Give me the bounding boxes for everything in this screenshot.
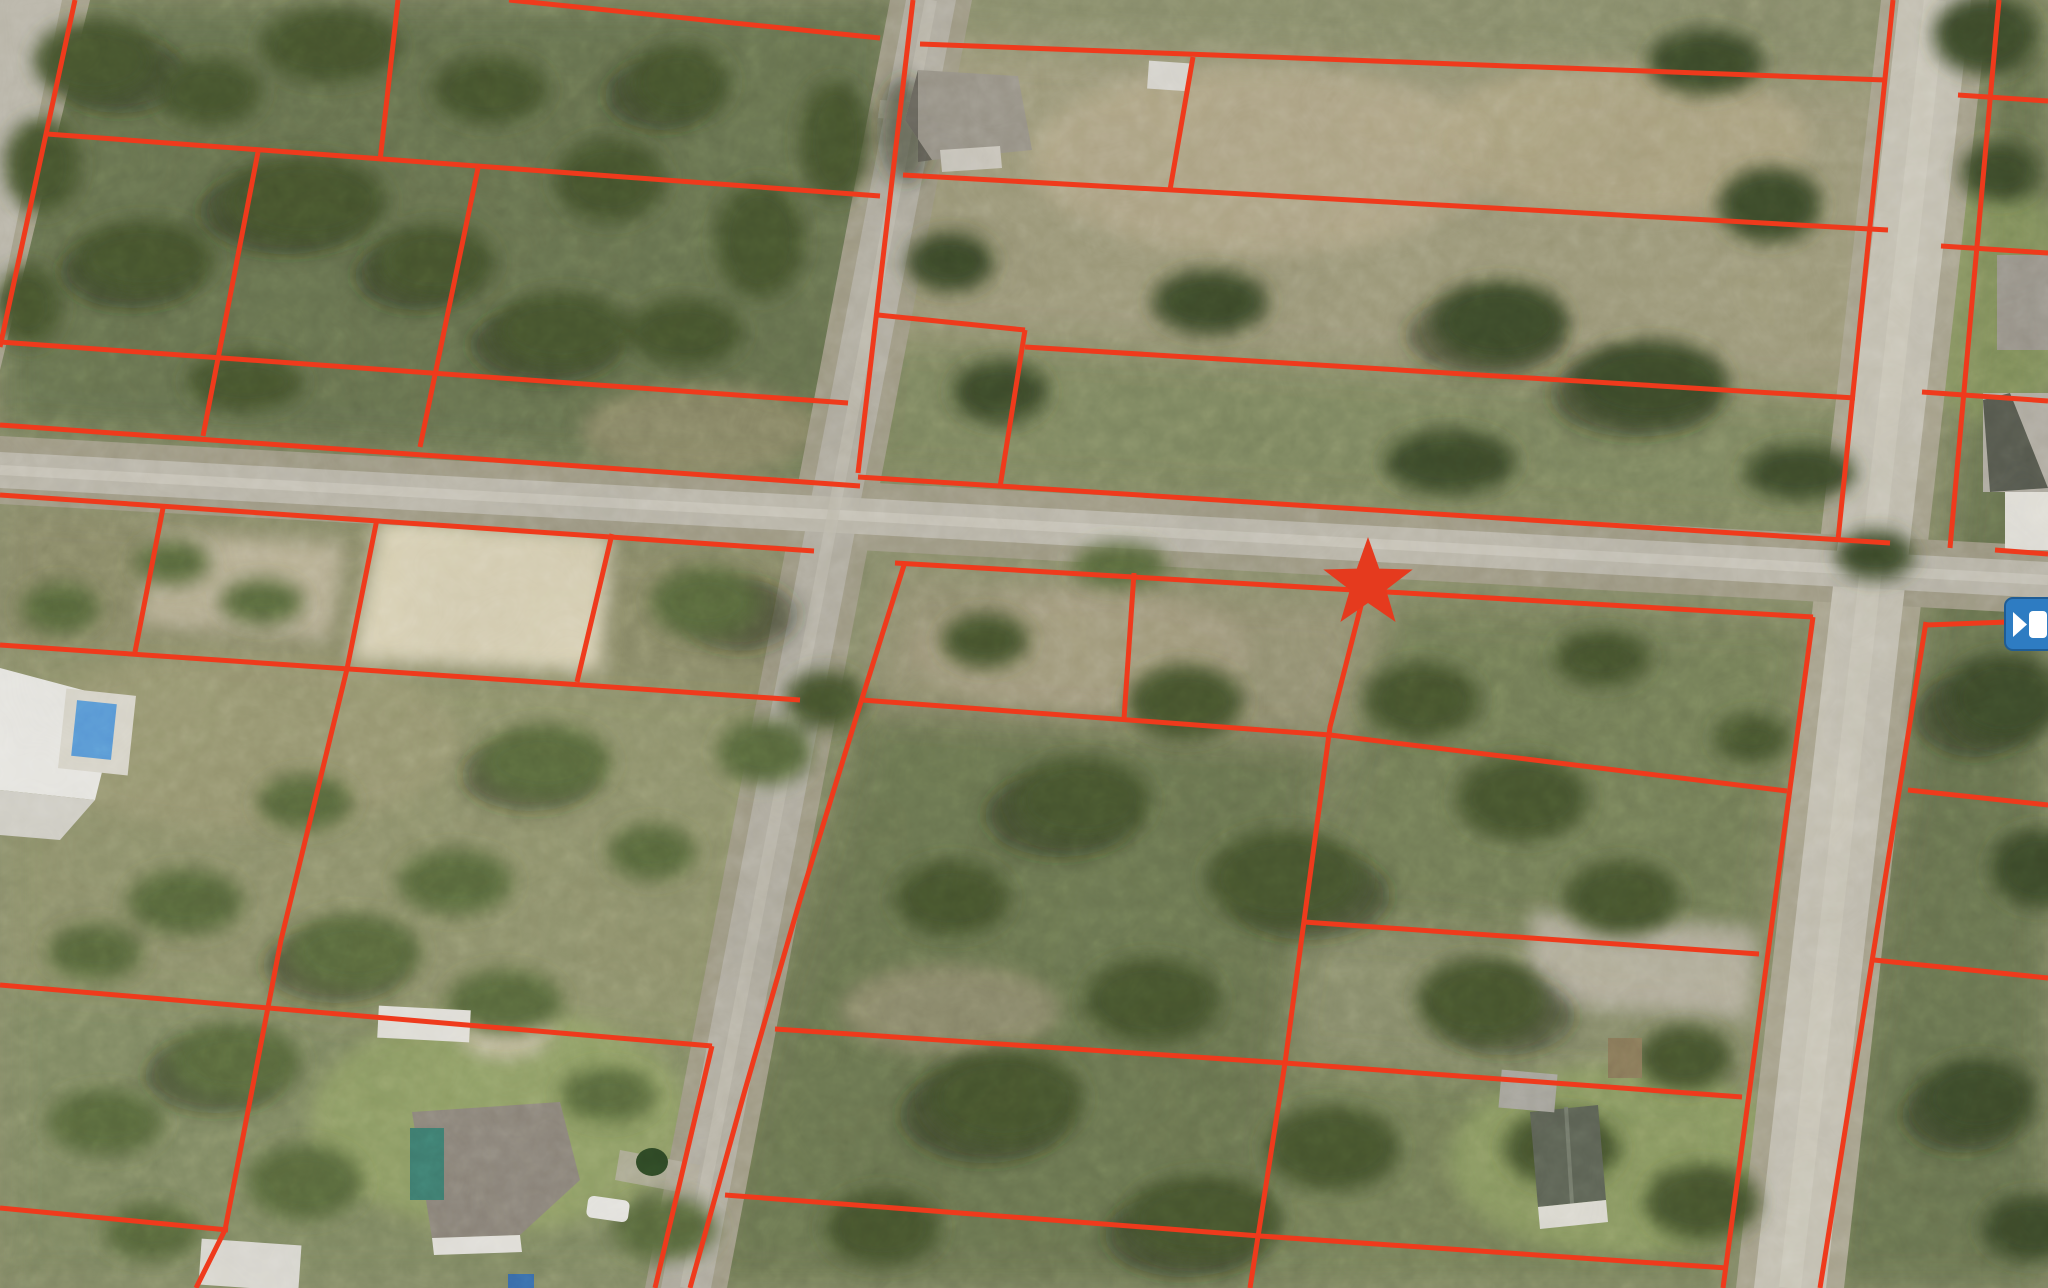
camera-body-icon	[2029, 611, 2047, 638]
map-viewport[interactable]	[0, 0, 2048, 1288]
aerial-map	[0, 0, 2048, 1288]
video-button[interactable]	[2005, 598, 2048, 650]
